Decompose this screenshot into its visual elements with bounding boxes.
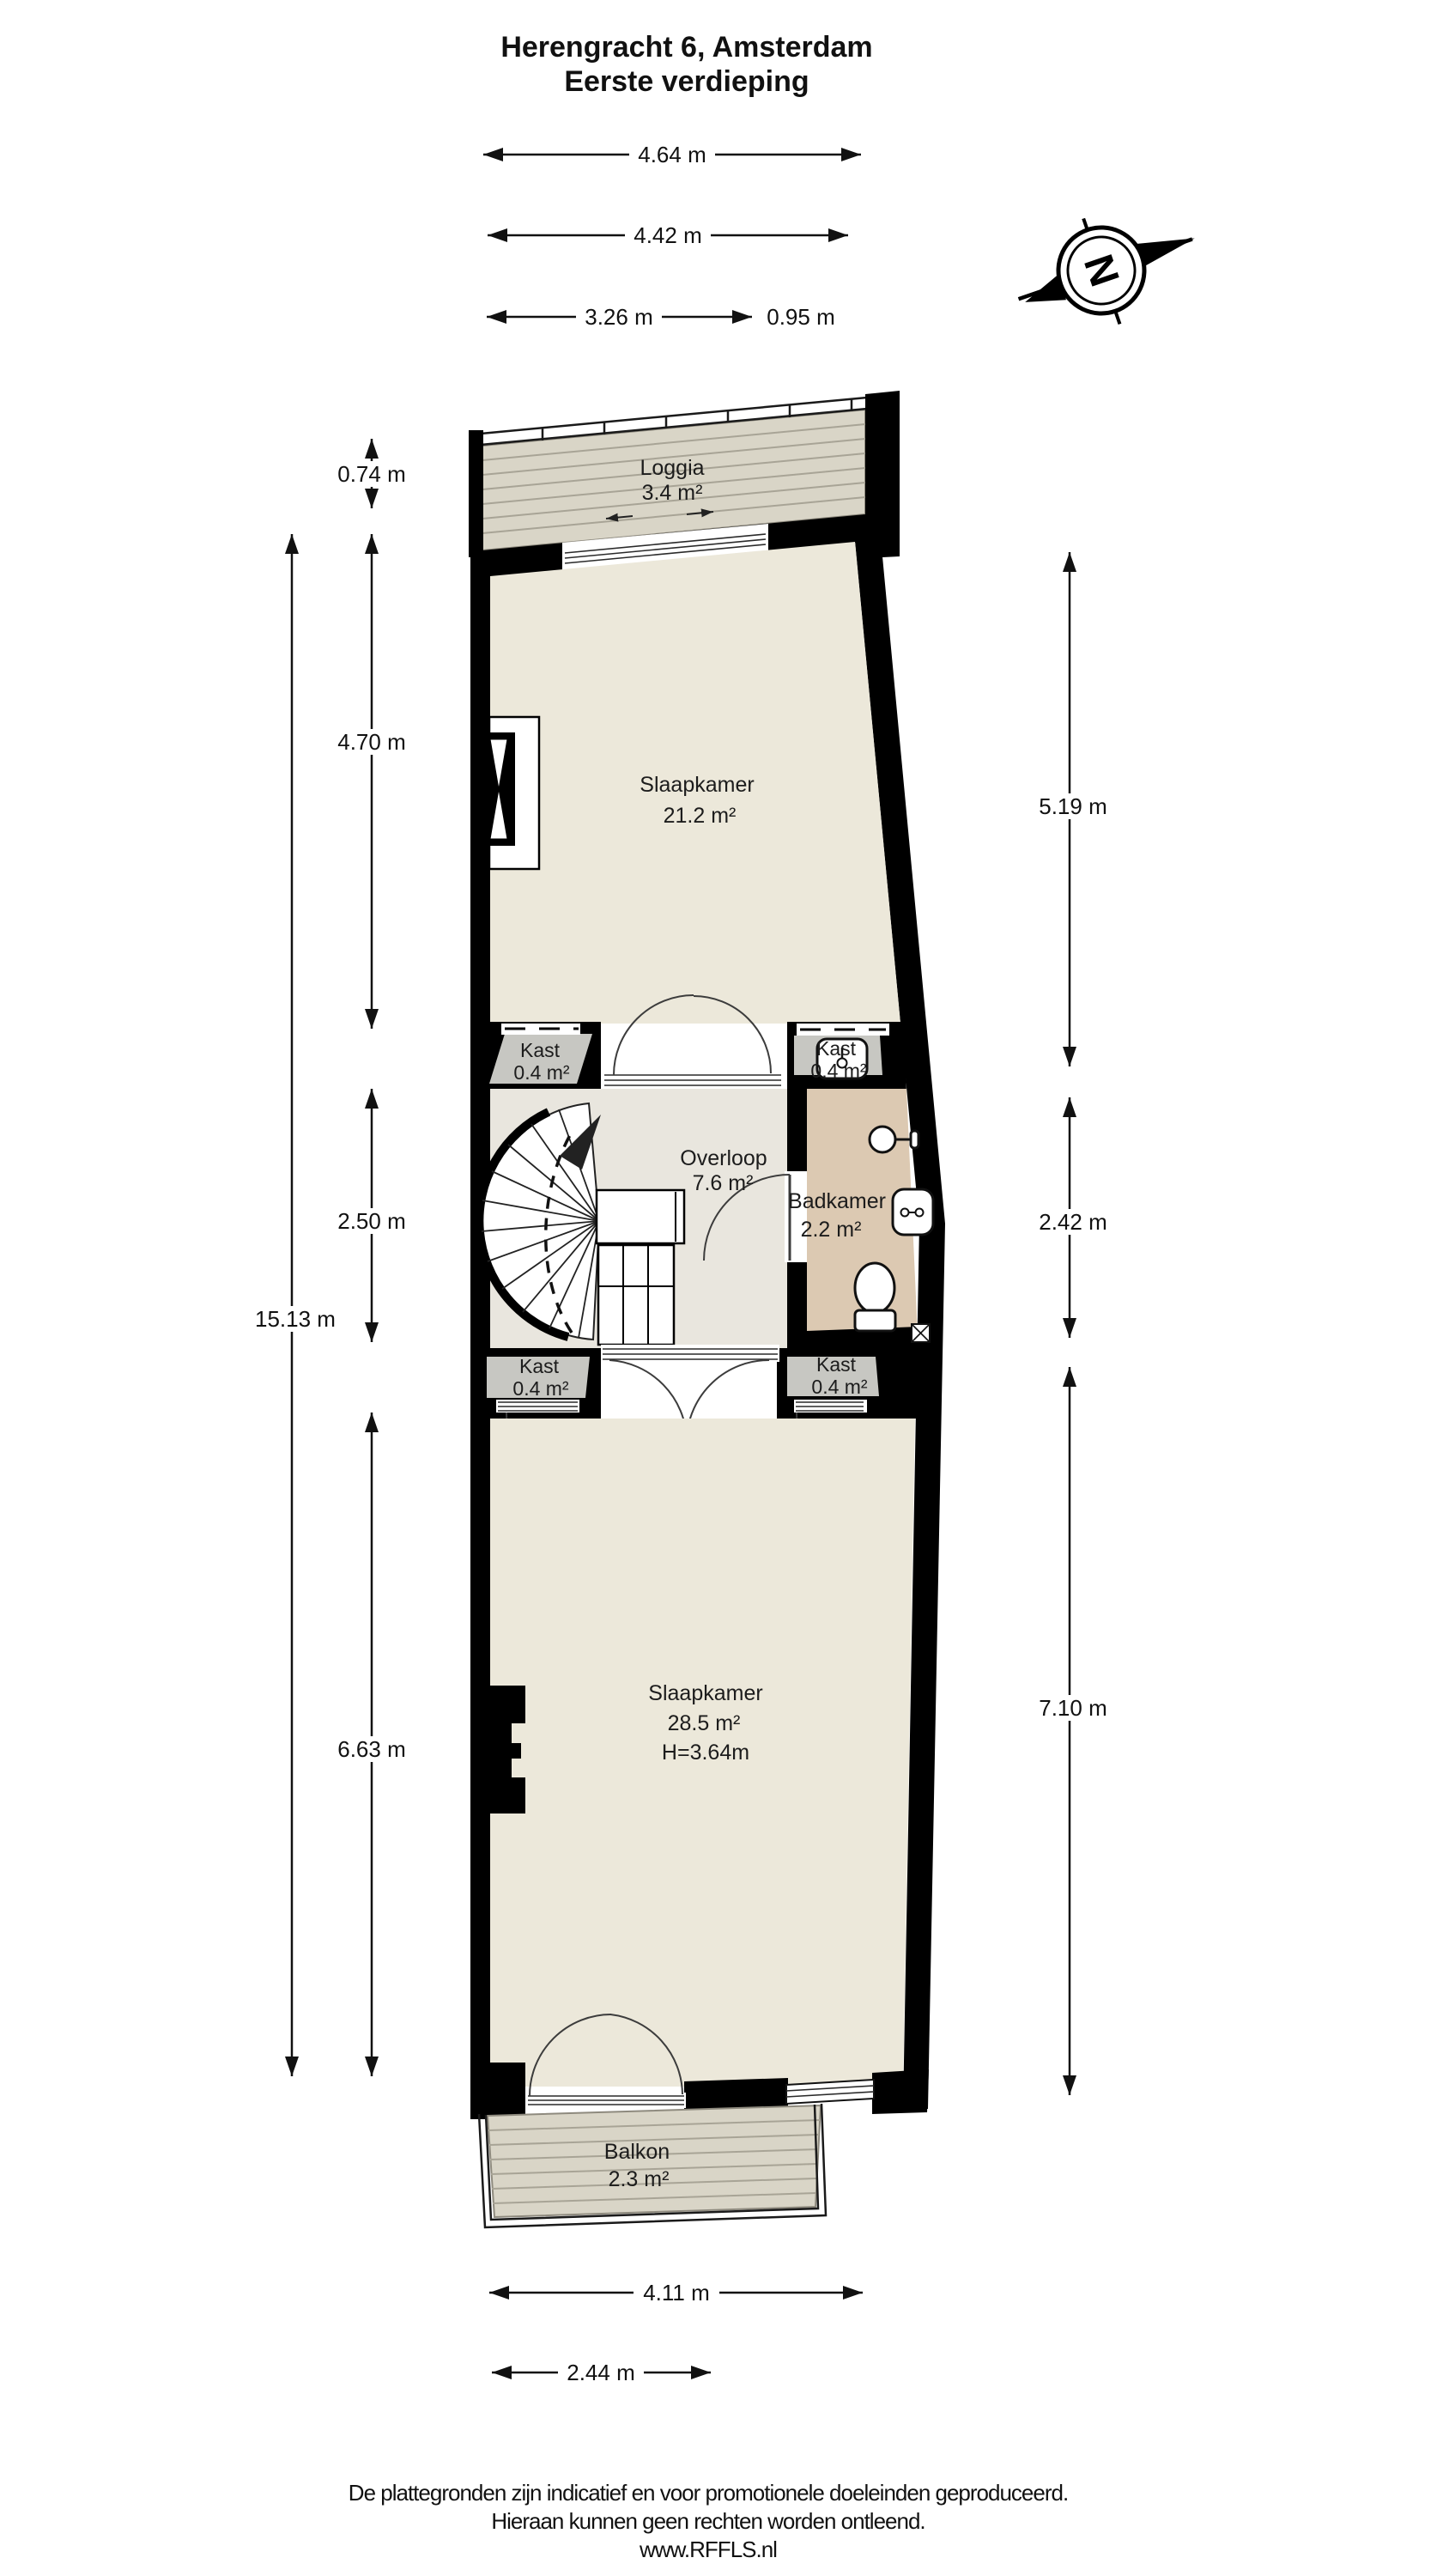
washbasin-tap-icon <box>911 1131 919 1148</box>
room-label-kast: Kast <box>520 1039 561 1061</box>
stair-landing <box>597 1190 684 1243</box>
room-area-kast: 0.4 m² <box>810 1060 867 1082</box>
toilet-tank-icon <box>855 1310 895 1331</box>
title-line: Herengracht 6, Amsterdam <box>500 31 872 64</box>
floorplan-page: Herengracht 6, Amsterdam Eerste verdiepi… <box>0 0 1449 2576</box>
wall-loggia-right <box>865 391 900 558</box>
room-area-kast: 0.4 m² <box>513 1061 570 1084</box>
floor-plan: Loggia 3.4 m² Slaapkamer 21.2 m² Kast 0.… <box>469 391 945 2227</box>
dim-label: 7.10 m <box>1039 1695 1107 1721</box>
dim-label: 4.11 m <box>643 2280 710 2306</box>
dim-label: 4.64 m <box>638 142 706 167</box>
dim-label: 6.63 m <box>337 1736 406 1762</box>
room-label-kast: Kast <box>816 1353 857 1376</box>
footer-line-1: De plattegronden zijn indicatief en voor… <box>349 2480 1068 2506</box>
left-dimensions: 0.74 m 4.70 m 2.50 m 15.13 m 6.63 m <box>246 439 415 2076</box>
wall-loggia-left <box>469 430 483 557</box>
room-area-slaapkamer-achter: 28.5 m² <box>668 1711 741 1735</box>
room-label-overloop: Overloop <box>680 1146 767 1170</box>
bottom-dimensions: 4.11 m 2.44 m <box>489 2280 863 2385</box>
room-label-slaapkamer-achter: Slaapkamer <box>648 1681 762 1705</box>
subtitle-line: Eerste verdieping <box>564 65 809 98</box>
room-label-loggia: Loggia <box>640 456 704 480</box>
chimney-tab <box>512 1743 521 1759</box>
room-area-kast: 0.4 m² <box>512 1377 569 1400</box>
room-area-badkamer: 2.2 m² <box>801 1218 862 1242</box>
stair-steps <box>598 1245 674 1345</box>
footer-line-2: Hieraan kunnen geen rechten worden ontle… <box>491 2508 925 2534</box>
room-label-slaapkamer-voor: Slaapkamer <box>640 773 754 797</box>
floorplan-drawing: Herengracht 6, Amsterdam Eerste verdiepi… <box>0 0 1449 2576</box>
toilet-bowl-icon <box>855 1263 894 1313</box>
room-height-slaapkamer-achter: H=3.64m <box>662 1741 749 1765</box>
window <box>786 2080 874 2104</box>
dim-label: 2.44 m <box>567 2360 635 2385</box>
compass: N <box>1001 186 1214 353</box>
room-balkon <box>479 2104 826 2227</box>
dim-label: 4.70 m <box>337 729 406 755</box>
dim-label: 4.42 m <box>634 222 702 248</box>
room-label-kast: Kast <box>816 1037 857 1060</box>
page-title: Herengracht 6, Amsterdam Eerste verdiepi… <box>500 31 872 98</box>
room-label-kast: Kast <box>519 1355 560 1377</box>
room-label-balkon: Balkon <box>604 2140 670 2164</box>
dim-label: 3.26 m <box>585 304 653 330</box>
dim-label: 2.50 m <box>337 1208 406 1234</box>
dim-label: 0.74 m <box>337 461 406 487</box>
wall-bottom-right <box>872 2069 929 2114</box>
footer-line-3: www.RFFLS.nl <box>639 2537 777 2562</box>
room-area-kast: 0.4 m² <box>811 1376 868 1398</box>
dim-label: 15.13 m <box>255 1306 336 1332</box>
room-area-loggia: 3.4 m² <box>642 481 703 505</box>
room-area-overloop: 7.6 m² <box>693 1171 754 1195</box>
washbasin-icon <box>870 1127 895 1152</box>
top-dimensions: 4.64 m 4.42 m 3.26 m 0.95 m <box>483 142 861 330</box>
right-dimensions: 5.19 m 2.42 m 7.10 m <box>1030 552 1116 2095</box>
badkamer-door-opening <box>785 1171 809 1262</box>
dim-label: 2.42 m <box>1039 1209 1107 1235</box>
wall-bottom-left <box>476 2063 525 2119</box>
dim-label: 5.19 m <box>1039 793 1107 819</box>
room-area-slaapkamer-voor: 21.2 m² <box>664 804 737 828</box>
footer-disclaimer: De plattegronden zijn indicatief en voor… <box>349 2480 1068 2562</box>
room-area-balkon: 2.3 m² <box>609 2167 670 2191</box>
room-label-badkamer: Badkamer <box>788 1189 886 1213</box>
dim-label: 0.95 m <box>767 304 835 330</box>
